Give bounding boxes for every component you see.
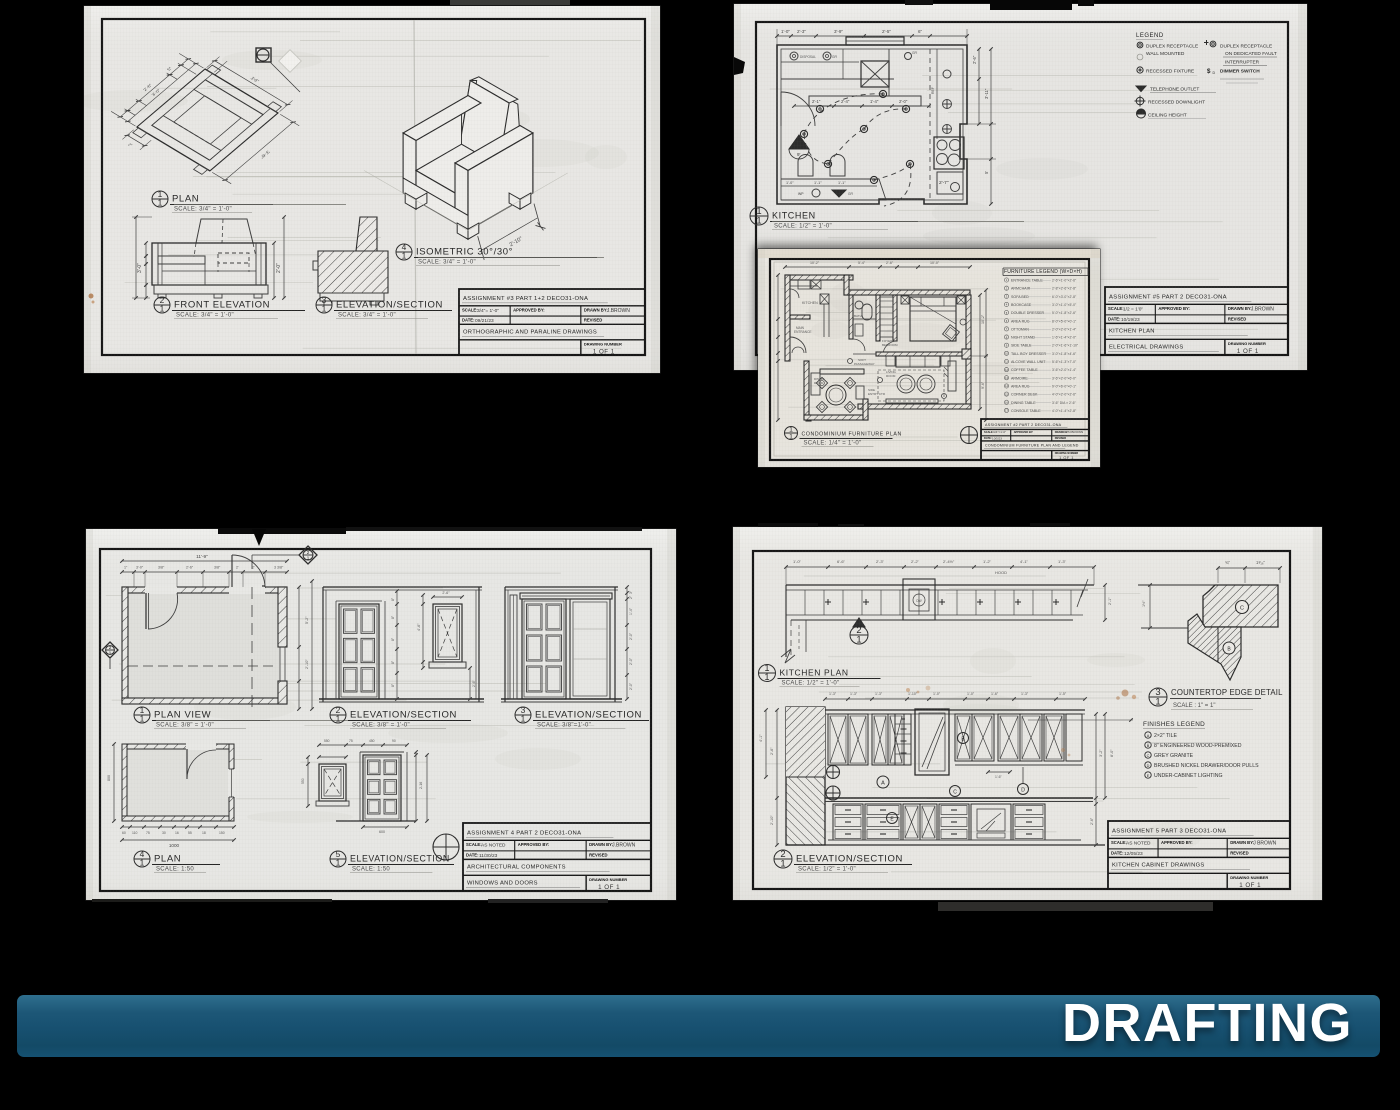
- svg-text:5'-6"×1'-3"×7'-0": 5'-6"×1'-3"×7'-0": [1052, 360, 1077, 364]
- svg-text:PLAN: PLAN: [154, 854, 181, 865]
- svg-text:10'-2": 10'-2": [810, 261, 820, 265]
- svg-text:3/8": 3/8": [214, 566, 221, 570]
- svg-text:FINISHES LEGEND: FINISHES LEGEND: [1143, 721, 1205, 728]
- svg-text:J.BROWN: J.BROWN: [607, 308, 630, 314]
- svg-text:1'-1": 1'-1": [814, 181, 822, 185]
- svg-text:1 OF 1: 1 OF 1: [1239, 882, 1261, 889]
- svg-text:1: 1: [1155, 696, 1160, 707]
- svg-text:550: 550: [324, 739, 330, 743]
- svg-text:GREY GRANITE: GREY GRANITE: [1154, 753, 1194, 759]
- svg-text:3'-0"×1'-8"×4'-6": 3'-0"×1'-8"×4'-6": [1052, 352, 1077, 356]
- svg-text:SCALE: 3/8"=1'-0": SCALE: 3/8"=1'-0": [537, 723, 591, 729]
- svg-text:3'-9": 3'-9": [834, 29, 843, 34]
- svg-text:5'-4": 5'-4": [858, 261, 866, 265]
- svg-text:2'-6": 2'-6": [770, 747, 774, 755]
- svg-text:DW: DW: [916, 599, 921, 603]
- svg-text:2'-0": 2'-0": [276, 263, 282, 273]
- svg-text:REVISED: REVISED: [584, 318, 602, 323]
- svg-text:1: 1: [160, 304, 165, 314]
- svg-text:J.BROWN: J.BROWN: [1251, 306, 1274, 312]
- svg-text:ASSIGNMENT #2 PART 2 DECO: ASSIGNMENT #2 PART 2 DECO31-ONA: [985, 423, 1062, 427]
- svg-text:2'-1": 2'-1": [812, 99, 821, 104]
- svg-text:3'-0": 3'-0": [136, 566, 144, 570]
- svg-text:REVISED: REVISED: [1055, 436, 1067, 440]
- svg-text:PASSAGEWAY: PASSAGEWAY: [854, 362, 875, 366]
- svg-text:1'-10": 1'-10": [908, 692, 918, 696]
- svg-text:A: A: [1147, 734, 1150, 738]
- svg-text:REVISED: REVISED: [1230, 850, 1248, 855]
- svg-text:800: 800: [107, 775, 111, 781]
- svg-text:1/2 = 1'0": 1/2 = 1'0": [1123, 306, 1143, 312]
- svg-text:SIDE TABLE: SIDE TABLE: [1011, 344, 1032, 348]
- svg-text:SCALE:: SCALE:: [1111, 840, 1127, 845]
- svg-text:1'-3": 1'-3": [1021, 692, 1029, 696]
- svg-text:450: 450: [369, 739, 375, 743]
- svg-text:BRUSHED NICKEL DRAWER/DOOR PUL: BRUSHED NICKEL DRAWER/DOOR PULLS: [1154, 763, 1259, 769]
- svg-text:60: 60: [122, 831, 126, 835]
- svg-text:1'-0": 1'-0": [786, 181, 794, 185]
- svg-text:1: 1: [336, 858, 341, 868]
- svg-text:1: 1: [780, 858, 785, 869]
- svg-text:1'-0": 1'-0": [933, 692, 941, 696]
- svg-text:ENTRY CTR: ENTRY CTR: [868, 392, 886, 396]
- svg-text:ALCOVE WALL UNIT: ALCOVE WALL UNIT: [1011, 360, 1046, 364]
- svg-text:SCALE: 3/8" = 1'-0": SCALE: 3/8" = 1'-0": [156, 723, 214, 729]
- svg-text:ELEVATION/SECTION: ELEVATION/SECTION: [350, 710, 457, 721]
- svg-text:ARCHITECTURAL COMPONENTS: ARCHITECTURAL COMPONENTS: [467, 864, 566, 870]
- svg-text:DRAWN BY:: DRAWN BY:: [584, 307, 608, 312]
- svg-text:90: 90: [392, 739, 396, 743]
- svg-text:SCALE: 1/2" = 1'-0": SCALE: 1/2" = 1'-0": [798, 867, 856, 873]
- svg-text:PLAN VIEW: PLAN VIEW: [154, 710, 211, 721]
- svg-text:DATE:: DATE:: [462, 318, 474, 323]
- svg-text:FURNITURE LEGEND (W×D×H): FURNITURE LEGEND (W×D×H): [1004, 269, 1082, 275]
- svg-text:2'-3": 2'-3": [797, 29, 806, 34]
- svg-text:1/4"=1'-0": 1/4"=1'-0": [993, 430, 1006, 434]
- svg-text:5'-2": 5'-2": [305, 616, 309, 624]
- svg-text:2'-5": 2'-5": [882, 29, 891, 34]
- svg-text:1: 1: [158, 198, 163, 208]
- svg-text:UNDER-CABINET LIGHTING: UNDER-CABINET LIGHTING: [1154, 773, 1223, 779]
- svg-text:REVISED: REVISED: [589, 852, 607, 857]
- svg-text:DRAWN BY:: DRAWN BY:: [1055, 430, 1070, 434]
- svg-text:CONDOMINIUM FURNITURE PLAN: CONDOMINIUM FURNITURE PLAN: [802, 432, 902, 438]
- svg-text:2'-8"×2'-6"×2'-8": 2'-8"×2'-6"×2'-8": [1052, 287, 1077, 291]
- svg-text:2'-2": 2'-2": [911, 559, 920, 564]
- svg-text:ISOMETRIC 30°/30°: ISOMETRIC 30°/30°: [416, 247, 513, 258]
- svg-text:3/4"= 1'-0": 3/4"= 1'-0": [477, 308, 499, 314]
- svg-text:9'-0"×6'-0"×0'-1": 9'-0"×6'-0"×0'-1": [1052, 384, 1077, 388]
- svg-text:ON DEDICATED FAULT: ON DEDICATED FAULT: [1225, 51, 1277, 57]
- svg-text:DRAWING NUMBER: DRAWING NUMBER: [1228, 341, 1266, 346]
- svg-text:2'-0": 2'-0": [899, 99, 908, 104]
- svg-text:KITCHEN: KITCHEN: [802, 301, 818, 305]
- svg-text:1'-3": 1'-3": [1058, 559, 1067, 564]
- svg-text:1 OF 1: 1 OF 1: [1059, 456, 1074, 460]
- svg-text:1 OF 1: 1 OF 1: [1237, 348, 1259, 355]
- svg-text:DUPLEX RECEPTACLE: DUPLEX RECEPTACLE: [1220, 44, 1272, 50]
- svg-text:2-16: 2-16: [419, 782, 423, 789]
- svg-text:GFI: GFI: [832, 55, 837, 59]
- svg-text:CONDOMINIUM FURNITURE PLAN AND: CONDOMINIUM FURNITURE PLAN AND LEGEND: [985, 444, 1079, 448]
- svg-text:ELECTRICAL DRAWINGS: ELECTRICAL DRAWINGS: [1109, 344, 1184, 350]
- svg-text:09/21/23: 09/21/23: [475, 318, 494, 324]
- svg-text:D: D: [1021, 788, 1025, 794]
- svg-text:3'-6"×2'-0"×1'-4": 3'-6"×2'-0"×1'-4": [1052, 368, 1077, 372]
- svg-text:PLAN: PLAN: [172, 194, 199, 205]
- svg-text:1'-3": 1'-3": [829, 692, 837, 696]
- svg-text:11: 11: [1005, 360, 1008, 364]
- svg-text:E: E: [1147, 774, 1150, 778]
- svg-text:16: 16: [175, 831, 179, 835]
- svg-text:A: A: [881, 781, 885, 787]
- svg-text:BEDROOM: BEDROOM: [882, 343, 898, 347]
- svg-text:8'-0"×5'-0"×0'-1": 8'-0"×5'-0"×0'-1": [1052, 319, 1077, 323]
- svg-text:FRONT ELEVATION: FRONT ELEVATION: [174, 300, 270, 311]
- svg-text:SCALE: 1/2" = 1'-0": SCALE: 1/2" = 1'-0": [782, 681, 840, 687]
- svg-text:2'-10": 2'-10": [770, 815, 774, 825]
- svg-text:3/8": 3/8": [158, 566, 165, 570]
- svg-text:1'-6": 1'-6": [991, 692, 999, 696]
- svg-text:18: 18: [202, 831, 206, 835]
- svg-text:4'-1": 4'-1": [1020, 559, 1029, 564]
- svg-text:6'-0"×3'-0"×2'-8": 6'-0"×3'-0"×2'-8": [1052, 295, 1077, 299]
- svg-text:5'-0"×1'-8"×2'-6": 5'-0"×1'-8"×2'-6": [1052, 311, 1077, 315]
- svg-text:$: $: [1207, 68, 1211, 75]
- svg-text:TELEPHONE OUTLET: TELEPHONE OUTLET: [1150, 87, 1199, 93]
- svg-text:75: 75: [349, 739, 353, 743]
- svg-text:2'-6": 2'-6": [1090, 817, 1094, 825]
- svg-text:C: C: [1147, 754, 1150, 758]
- svg-text:1'-4": 1'-4": [629, 607, 633, 615]
- svg-text:2'-0"×1'-6"×1'-10": 2'-0"×1'-6"×1'-10": [1052, 344, 1079, 348]
- svg-text:SCALE: 3/4" = 1'-0": SCALE: 3/4" = 1'-0": [176, 313, 234, 319]
- svg-text:110: 110: [132, 831, 138, 835]
- svg-text:1'-3": 1'-3": [850, 692, 858, 696]
- svg-text:1: 1: [856, 634, 861, 645]
- svg-text:2'-10": 2'-10": [305, 659, 309, 669]
- svg-text:11/30/23: 11/30/23: [479, 853, 498, 859]
- svg-text:2'-1": 2'-1": [1108, 597, 1112, 605]
- svg-text:1'-2": 1'-2": [983, 559, 992, 564]
- svg-text:1'-4": 1'-4": [870, 99, 879, 104]
- svg-text:ASSIGNMENT #3 PART 1+2 DECO: ASSIGNMENT #3 PART 1+2 DECO31-ONA: [463, 296, 588, 302]
- svg-text:12: 12: [1005, 368, 1008, 372]
- svg-text:B: B: [1147, 744, 1150, 748]
- svg-text:13: 13: [1005, 376, 1008, 380]
- svg-text:SCALE: 1/4" = 1'-0": SCALE: 1/4" = 1'-0": [804, 441, 862, 447]
- svg-text:DATE:: DATE:: [466, 852, 478, 857]
- svg-text:14: 14: [1005, 384, 1008, 388]
- svg-text:KITCHEN PLAN: KITCHEN PLAN: [780, 668, 849, 678]
- svg-text:ROOM: ROOM: [886, 374, 896, 378]
- svg-text:1³⁄₁₆": 1³⁄₁₆": [1256, 560, 1266, 565]
- svg-text:WINDOWS AND DOORS: WINDOWS AND DOORS: [467, 880, 538, 886]
- svg-text:2'-0": 2'-0": [629, 657, 633, 665]
- svg-text:ENTRANCE: ENTRANCE: [794, 330, 812, 334]
- svg-text:1'-6"×1'-4"×2'-0": 1'-6"×1'-4"×2'-0": [1052, 336, 1077, 340]
- svg-text:2'-6": 2'-6": [972, 55, 977, 64]
- svg-text:1: 1: [756, 215, 761, 226]
- svg-text:2': 2': [236, 566, 239, 570]
- svg-text:2'-3": 2'-3": [876, 559, 885, 564]
- svg-text:2'-4": 2'-4": [841, 99, 850, 104]
- svg-text:2'-4½": 2'-4½": [943, 559, 955, 564]
- svg-text:CEILING HEIGHT: CEILING HEIGHT: [1148, 113, 1187, 119]
- svg-text:4'-0"×1'-4"×2'-8": 4'-0"×1'-4"×2'-8": [1052, 409, 1077, 413]
- svg-text:ELEVATION/SECTION: ELEVATION/SECTION: [350, 854, 450, 864]
- svg-text:SCALE: 3/8" = 1'-0": SCALE: 3/8" = 1'-0": [352, 723, 410, 729]
- svg-text:4'-0"×2'-0"×2'-6": 4'-0"×2'-0"×2'-6": [1052, 393, 1077, 397]
- svg-text:3'-2": 3'-2": [1099, 749, 1103, 757]
- svg-text:ELEVATION/SECTION: ELEVATION/SECTION: [535, 710, 642, 721]
- svg-text:1: 1: [336, 714, 341, 724]
- svg-text:DISPOSAL: DISPOSAL: [800, 55, 816, 59]
- svg-text:LEGEND: LEGEND: [1136, 33, 1164, 39]
- svg-text:1: 1: [789, 433, 793, 440]
- svg-text:APPROVED BY:: APPROVED BY:: [1161, 840, 1193, 845]
- svg-text:BATH: BATH: [854, 314, 862, 318]
- svg-text:1: 1: [765, 672, 770, 682]
- svg-text:DINING TABLE: DINING TABLE: [1011, 401, 1036, 405]
- svg-text:3 3/8": 3 3/8": [274, 566, 284, 570]
- svg-text:D: D: [1147, 764, 1150, 768]
- svg-text:INTERRUPTER: INTERRUPTER: [1225, 60, 1260, 66]
- svg-text:DRAWN BY:: DRAWN BY:: [1228, 306, 1252, 311]
- svg-text:REVISED: REVISED: [1228, 316, 1246, 321]
- svg-text:8" ENGINEERED WOOD-PREMIXED: 8" ENGINEERED WOOD-PREMIXED: [1154, 743, 1242, 749]
- svg-text:10/19/23: 10/19/23: [1121, 317, 1140, 323]
- svg-text:SCALE : 1" = 1": SCALE : 1" = 1": [1173, 703, 1215, 709]
- svg-text:SCALE: 1:50: SCALE: 1:50: [156, 867, 194, 873]
- svg-text:DRAWING NUMBER: DRAWING NUMBER: [1230, 875, 1268, 880]
- svg-text:10'-2": 10'-2": [981, 314, 985, 324]
- svg-text:WP: WP: [798, 192, 804, 196]
- svg-text:DATE:: DATE:: [984, 436, 992, 440]
- svg-text:APPROVED BY:: APPROVED BY:: [518, 842, 550, 847]
- svg-text:4'-1": 4'-1": [759, 734, 763, 742]
- svg-text:SCALE: 3/4" = 1'-0": SCALE: 3/4" = 1'-0": [418, 260, 476, 266]
- svg-text:5': 5': [984, 171, 989, 174]
- svg-text:APPROVED BY:: APPROVED BY:: [513, 307, 545, 312]
- svg-text:KITCHEN PLAN: KITCHEN PLAN: [1109, 328, 1155, 334]
- svg-text:TALL BOY DRESSER: TALL BOY DRESSER: [1011, 352, 1046, 356]
- svg-text:SCALE:: SCALE:: [1108, 306, 1124, 311]
- svg-text:10/5/23: 10/5/23: [992, 437, 1002, 441]
- svg-text:55: 55: [188, 831, 192, 835]
- svg-text:C: C: [1240, 606, 1244, 612]
- svg-text:75: 75: [146, 831, 150, 835]
- svg-text:2'-0": 2'-0": [629, 682, 633, 690]
- svg-text:8'-0": 8'-0": [1110, 749, 1114, 757]
- svg-text:2': 2': [252, 566, 255, 570]
- svg-text:ASSIGNMENT 4 PART 2 DECO3: ASSIGNMENT 4 PART 2 DECO31-ONA: [467, 831, 581, 837]
- svg-text:3'-0": 3'-0": [137, 263, 143, 273]
- svg-text:30: 30: [162, 831, 166, 835]
- svg-text:3'-6" DIA × 2'-6": 3'-6" DIA × 2'-6": [1052, 401, 1077, 405]
- svg-text:1'-5": 1'-5": [1059, 692, 1067, 696]
- svg-text:DRAWING NUMBER: DRAWING NUMBER: [1055, 452, 1079, 455]
- svg-text:DUPLEX RECEPTACLE: DUPLEX RECEPTACLE: [1146, 44, 1198, 50]
- svg-text:1'-3": 1'-3": [875, 692, 883, 696]
- svg-text:ELEVATION/SECTION: ELEVATION/SECTION: [336, 300, 443, 311]
- svg-text:SCALE: 3/4" = 1'-0": SCALE: 3/4" = 1'-0": [174, 207, 232, 213]
- svg-text:1½": 1½": [1142, 600, 1146, 607]
- svg-text:10: 10: [1005, 352, 1008, 356]
- svg-text:4'-6": 4'-6": [417, 623, 421, 631]
- svg-text:1: 1: [521, 714, 526, 724]
- svg-text:ORTHOGRAPHIC AND PARALINE D: ORTHOGRAPHIC AND PARALINE DRAWINGS: [463, 329, 597, 335]
- svg-text:550: 550: [301, 778, 305, 784]
- svg-text:AS NOTED: AS NOTED: [481, 842, 506, 848]
- svg-text:DRAWING NUMBER: DRAWING NUMBER: [584, 341, 622, 346]
- svg-text:2'-6"×1'-0"×2'-6": 2'-6"×1'-0"×2'-6": [1052, 279, 1077, 283]
- svg-text:APPROVED BY:: APPROVED BY:: [1158, 306, 1190, 311]
- svg-text:2'-6": 2'-6": [442, 591, 450, 595]
- svg-text:DIMMER SWITCH: DIMMER SWITCH: [1220, 69, 1260, 75]
- svg-text:GFI: GFI: [912, 51, 917, 55]
- svg-text:6": 6": [918, 29, 923, 34]
- svg-text:3'-0"×1'-0"×5'-0": 3'-0"×1'-0"×5'-0": [1052, 303, 1077, 307]
- svg-text:2'-7": 2'-7": [939, 180, 949, 186]
- svg-text:2'-0": 2'-0": [629, 632, 633, 640]
- svg-text:SCALE:: SCALE:: [466, 842, 482, 847]
- svg-text:10'-0": 10'-0": [930, 261, 940, 265]
- svg-text:COUNTERTOP EDGE DETAIL: COUNTERTOP EDGE DETAIL: [1171, 688, 1283, 697]
- svg-text:DRAWN BY:: DRAWN BY:: [589, 842, 613, 847]
- svg-text:J.BROWN: J.BROWN: [612, 842, 635, 848]
- svg-text:ROOM: ROOM: [814, 381, 824, 385]
- svg-text:¾": ¾": [1225, 560, 1230, 565]
- svg-text:ASSIGNMENT 5 PART 3 DECO3: ASSIGNMENT 5 PART 3 DECO31-ONA: [1112, 829, 1226, 835]
- svg-text:HOOD: HOOD: [995, 570, 1007, 575]
- svg-text:1: 1: [402, 251, 407, 261]
- svg-text:KITCHEN CABINET DRAWINGS: KITCHEN CABINET DRAWINGS: [1112, 862, 1205, 868]
- svg-text:2'-6": 2'-6": [886, 261, 894, 265]
- svg-text:1'-0": 1'-0": [781, 29, 790, 34]
- svg-text:ASSIGNMENT #5 PART 2 DEC: ASSIGNMENT #5 PART 2 DECO31-ONA: [1109, 295, 1227, 301]
- svg-text:J.BROWN: J.BROWN: [1069, 430, 1083, 434]
- svg-text:KITCHEN: KITCHEN: [772, 211, 816, 221]
- svg-text:1'-0": 1'-0": [967, 692, 975, 696]
- svg-text:1: 1: [322, 304, 327, 314]
- svg-text:1'-0": 1'-0": [793, 559, 802, 564]
- svg-text:WALL MOUNTED: WALL MOUNTED: [1146, 51, 1185, 57]
- svg-text:1 OF 1: 1 OF 1: [598, 884, 620, 891]
- svg-text:2'-6": 2'-6": [186, 566, 194, 570]
- svg-text:9'-6": 9'-6": [981, 381, 985, 389]
- svg-text:ELEVATION/SECTION: ELEVATION/SECTION: [796, 854, 903, 865]
- svg-text:1 OF 1: 1 OF 1: [593, 348, 615, 355]
- svg-text:600: 600: [379, 830, 385, 834]
- svg-text:6'-6": 6'-6": [837, 559, 846, 564]
- svg-text:DRAWN BY:: DRAWN BY:: [1230, 840, 1254, 845]
- svg-text:12/05/23: 12/05/23: [1124, 851, 1143, 857]
- svg-text:2'-6": 2'-6": [472, 679, 476, 687]
- svg-text:2'-0"×2'-0"×1'-4": 2'-0"×2'-0"×1'-4": [1052, 327, 1077, 331]
- svg-text:SCALE: 1:50: SCALE: 1:50: [352, 867, 390, 873]
- svg-text:C: C: [953, 790, 957, 796]
- svg-text:D: D: [1213, 71, 1216, 75]
- svg-text:REF: REF: [931, 87, 935, 94]
- svg-text:3'-6"×2'-0"×6'-0": 3'-6"×2'-0"×6'-0": [1052, 376, 1077, 380]
- svg-text:APPROVED BY:: APPROVED BY:: [1014, 430, 1034, 434]
- svg-text:17: 17: [1005, 409, 1008, 413]
- svg-text:1'-1": 1'-1": [838, 181, 846, 185]
- svg-text:1: 1: [140, 858, 145, 868]
- svg-text:RECESSED DOWNLIGHT: RECESSED DOWNLIGHT: [1148, 100, 1205, 106]
- svg-text:GFI: GFI: [848, 192, 853, 196]
- svg-text:SCALE: 3/4" = 1'-0": SCALE: 3/4" = 1'-0": [338, 313, 396, 319]
- svg-text:AS NOTED: AS NOTED: [1126, 840, 1151, 846]
- svg-text:SCALE:: SCALE:: [462, 307, 478, 312]
- svg-text:1: 1: [140, 714, 145, 724]
- svg-text:DRAWING NUMBER: DRAWING NUMBER: [589, 877, 627, 882]
- svg-text:DATE:: DATE:: [1108, 316, 1120, 321]
- svg-text:11'-9": 11'-9": [196, 554, 208, 560]
- svg-text:1000: 1000: [169, 843, 180, 848]
- svg-text:RECESSED FIXTURE: RECESSED FIXTURE: [1146, 69, 1194, 75]
- svg-text:1'-6": 1'-6": [995, 775, 1003, 779]
- svg-text:NIGHT STAND: NIGHT STAND: [1011, 336, 1035, 340]
- svg-text:2×2" TILE: 2×2" TILE: [1154, 733, 1177, 739]
- svg-text:DATE:: DATE:: [1111, 850, 1123, 855]
- svg-text:J BROWN: J BROWN: [1253, 840, 1276, 846]
- svg-text:3'-11": 3'-11": [984, 88, 989, 99]
- svg-text:SCALE: 1/2" = 1'-0": SCALE: 1/2" = 1'-0": [774, 224, 832, 230]
- svg-text:16: 16: [1005, 400, 1008, 404]
- svg-text:15: 15: [1005, 392, 1008, 396]
- svg-text:150: 150: [219, 831, 225, 835]
